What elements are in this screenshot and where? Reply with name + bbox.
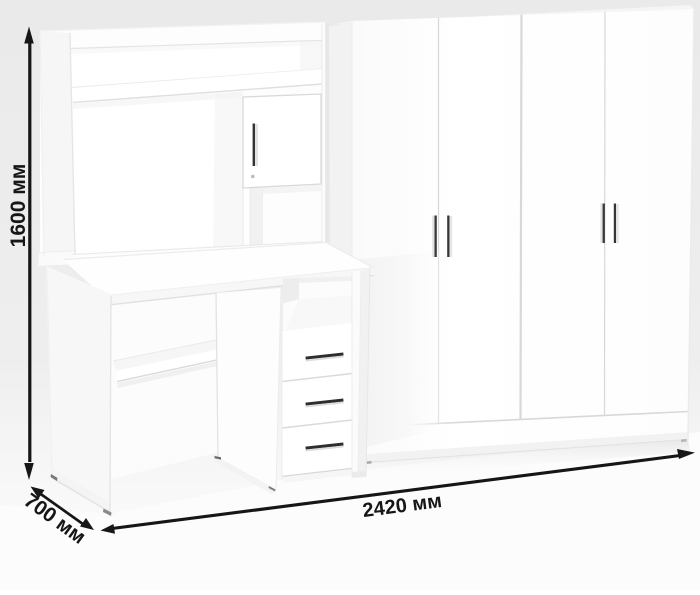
svg-text:1600 мм: 1600 мм [7,164,30,248]
